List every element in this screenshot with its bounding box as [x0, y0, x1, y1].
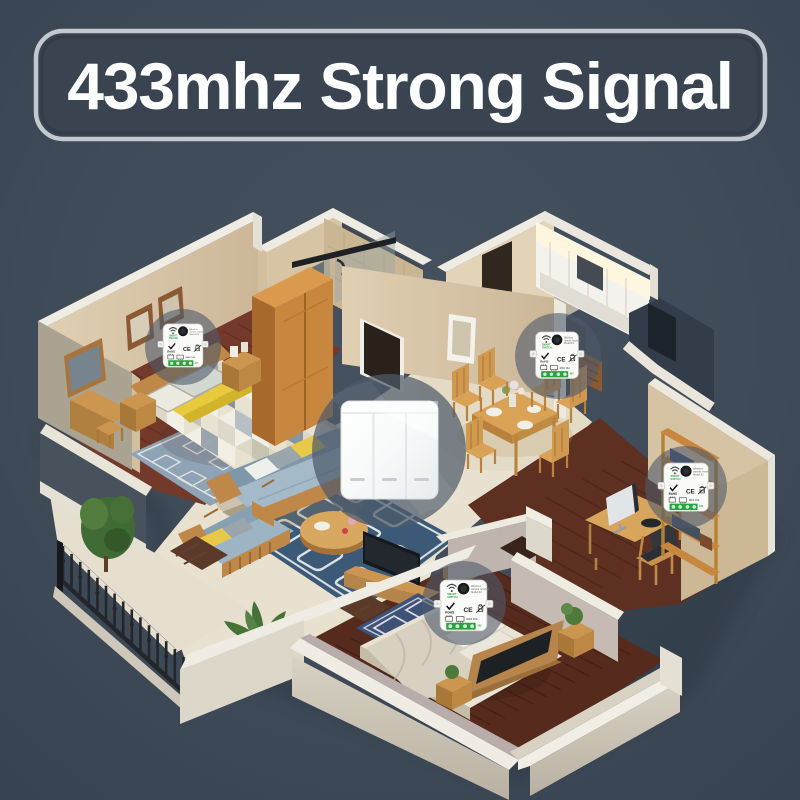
svg-text:433mhz Strong Signal: 433mhz Strong Signal	[67, 49, 732, 123]
